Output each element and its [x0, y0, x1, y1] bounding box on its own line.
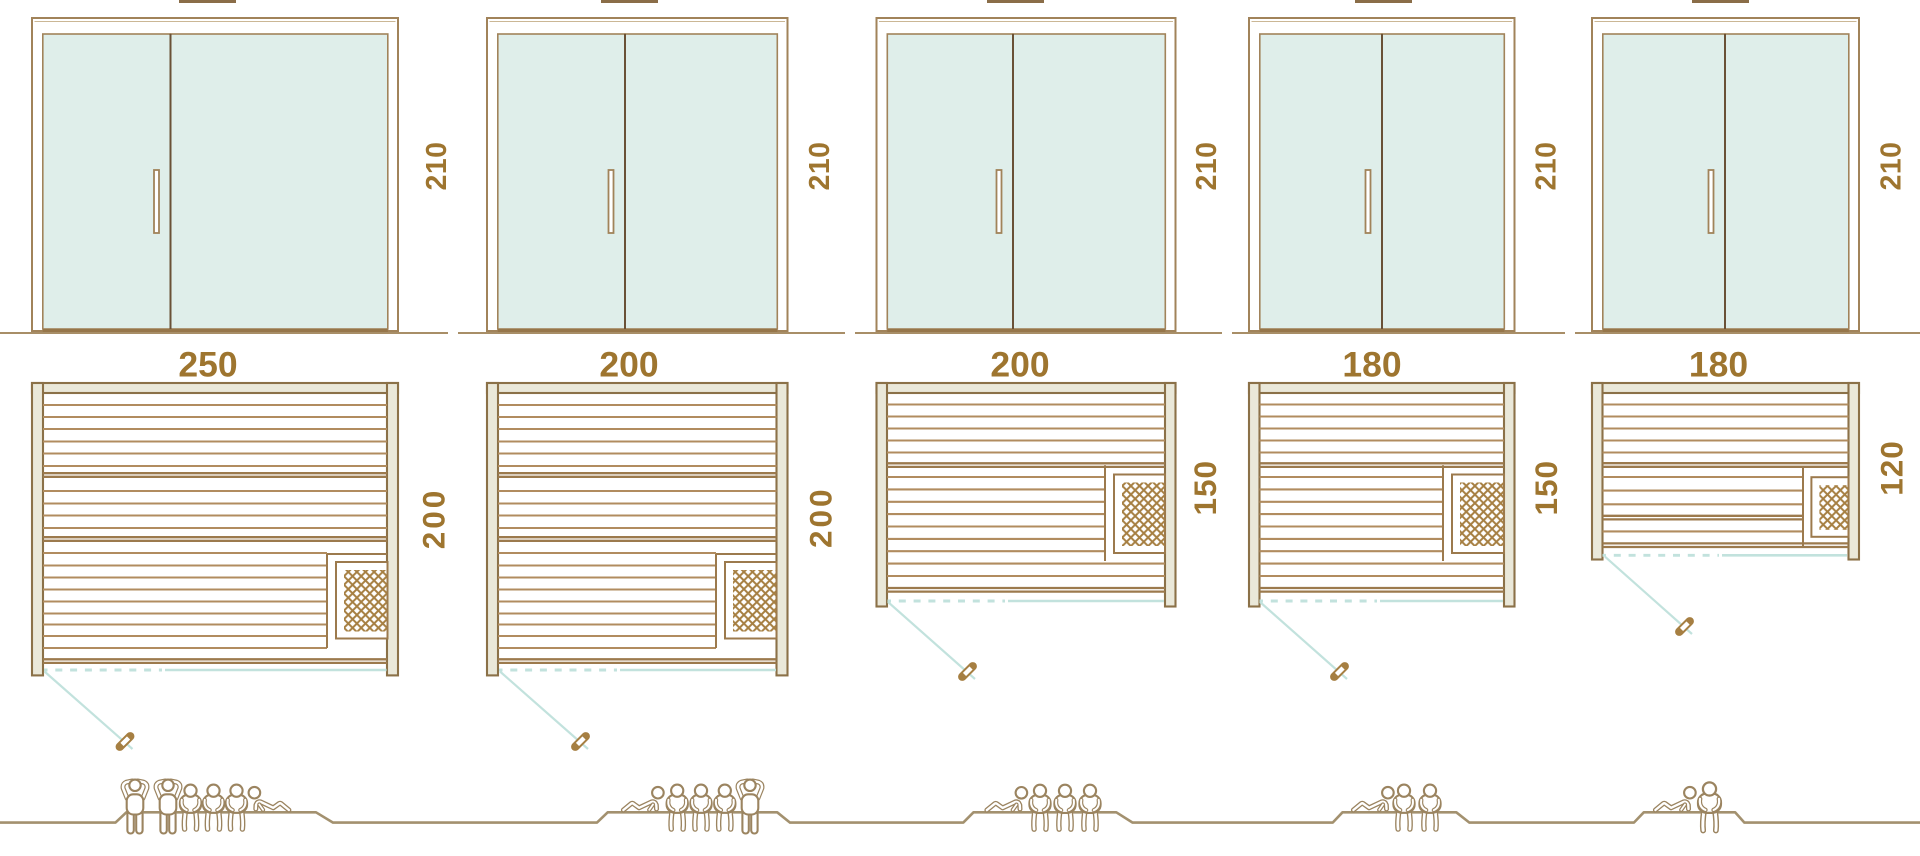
svg-text:120: 120	[1873, 440, 1909, 496]
svg-text:210: 210	[804, 141, 836, 190]
svg-text:150: 150	[1528, 460, 1564, 516]
svg-text:200: 200	[990, 345, 1049, 385]
svg-text:210: 210	[421, 141, 453, 190]
svg-text:210: 210	[1876, 141, 1908, 190]
svg-text:180: 180	[1689, 345, 1748, 385]
svg-text:200: 200	[599, 345, 658, 385]
svg-text:210: 210	[1531, 141, 1563, 190]
svg-text:200: 200	[802, 486, 838, 548]
svg-text:250: 250	[178, 345, 237, 385]
svg-text:210: 210	[1191, 141, 1223, 190]
svg-text:150: 150	[1187, 460, 1223, 516]
svg-text:180: 180	[1342, 345, 1401, 385]
svg-text:200: 200	[416, 488, 452, 550]
